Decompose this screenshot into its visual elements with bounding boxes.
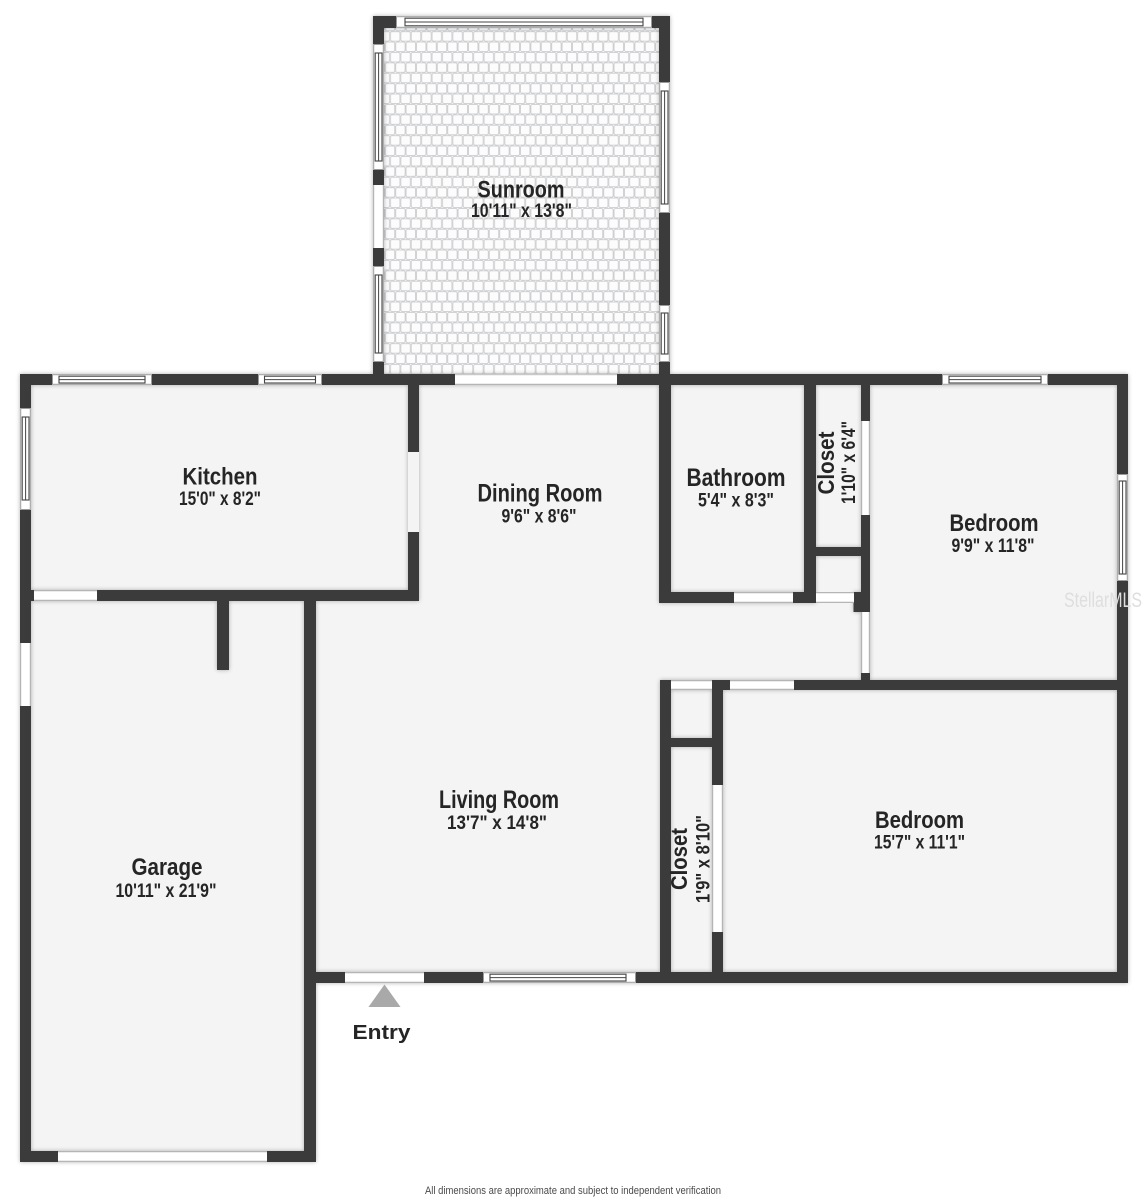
svg-text:5'4" x 8'3": 5'4" x 8'3" — [698, 491, 774, 512]
svg-text:9'6" x 8'6": 9'6" x 8'6" — [502, 507, 577, 528]
svg-text:Entry: Entry — [353, 1021, 412, 1044]
svg-text:StellarMLS: StellarMLS — [1064, 589, 1142, 612]
svg-text:Closet: Closet — [813, 431, 839, 494]
svg-text:Bedroom: Bedroom — [950, 510, 1039, 537]
svg-text:Dining Room: Dining Room — [478, 480, 603, 508]
svg-text:15'7" x 11'1": 15'7" x 11'1" — [874, 833, 965, 854]
svg-text:9'9" x 11'8": 9'9" x 11'8" — [952, 536, 1035, 557]
svg-text:10'11" x 21'9": 10'11" x 21'9" — [116, 881, 217, 902]
svg-text:Closet: Closet — [666, 828, 692, 890]
svg-text:13'7" x 14'8": 13'7" x 14'8" — [447, 813, 547, 834]
svg-text:Kitchen: Kitchen — [183, 464, 258, 491]
svg-text:Bathroom: Bathroom — [687, 464, 786, 492]
svg-text:Living Room: Living Room — [439, 786, 559, 814]
svg-text:10'11" x 13'8": 10'11" x 13'8" — [471, 200, 572, 222]
svg-text:1'10" x 6'4": 1'10" x 6'4" — [838, 421, 860, 504]
svg-text:Bedroom: Bedroom — [875, 807, 964, 834]
svg-text:Garage: Garage — [132, 854, 203, 881]
svg-text:1'9" x 8'10": 1'9" x 8'10" — [693, 815, 715, 903]
svg-text:All dimensions are approximate: All dimensions are approximate and subje… — [425, 1185, 721, 1197]
svg-text:15'0" x 8'2": 15'0" x 8'2" — [179, 489, 261, 510]
